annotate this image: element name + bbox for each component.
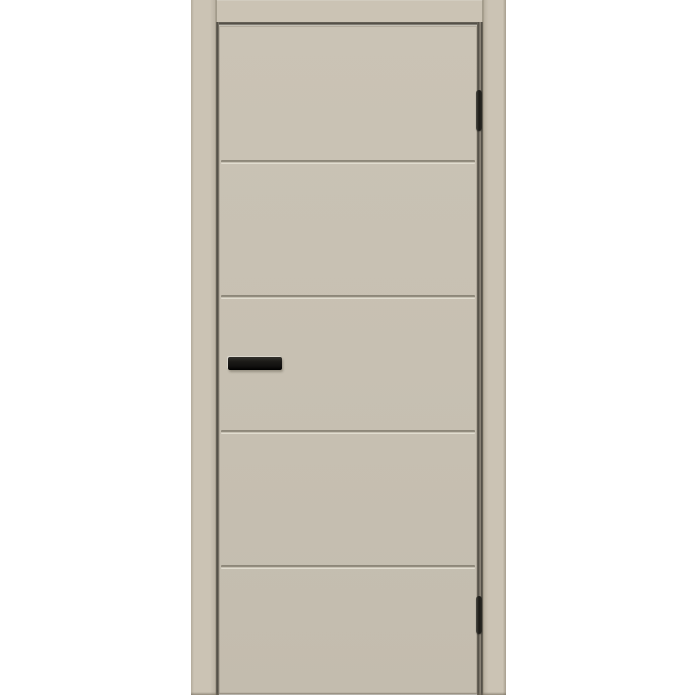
panel-groove (221, 295, 475, 299)
door-bottom-edge (191, 692, 506, 695)
door-frame-top-lintel (216, 0, 483, 22)
door-product-photo (0, 0, 700, 700)
door-frame-right-jamb (483, 0, 506, 695)
door-handle (228, 357, 282, 370)
panel-groove (221, 430, 475, 434)
door-frame-left-jamb (191, 0, 216, 695)
panel-groove (221, 160, 475, 164)
door-hinge (476, 596, 482, 634)
door-leaf (219, 26, 477, 694)
door-assembly (191, 0, 506, 695)
door-hinge (476, 90, 482, 131)
panel-groove (221, 565, 475, 569)
